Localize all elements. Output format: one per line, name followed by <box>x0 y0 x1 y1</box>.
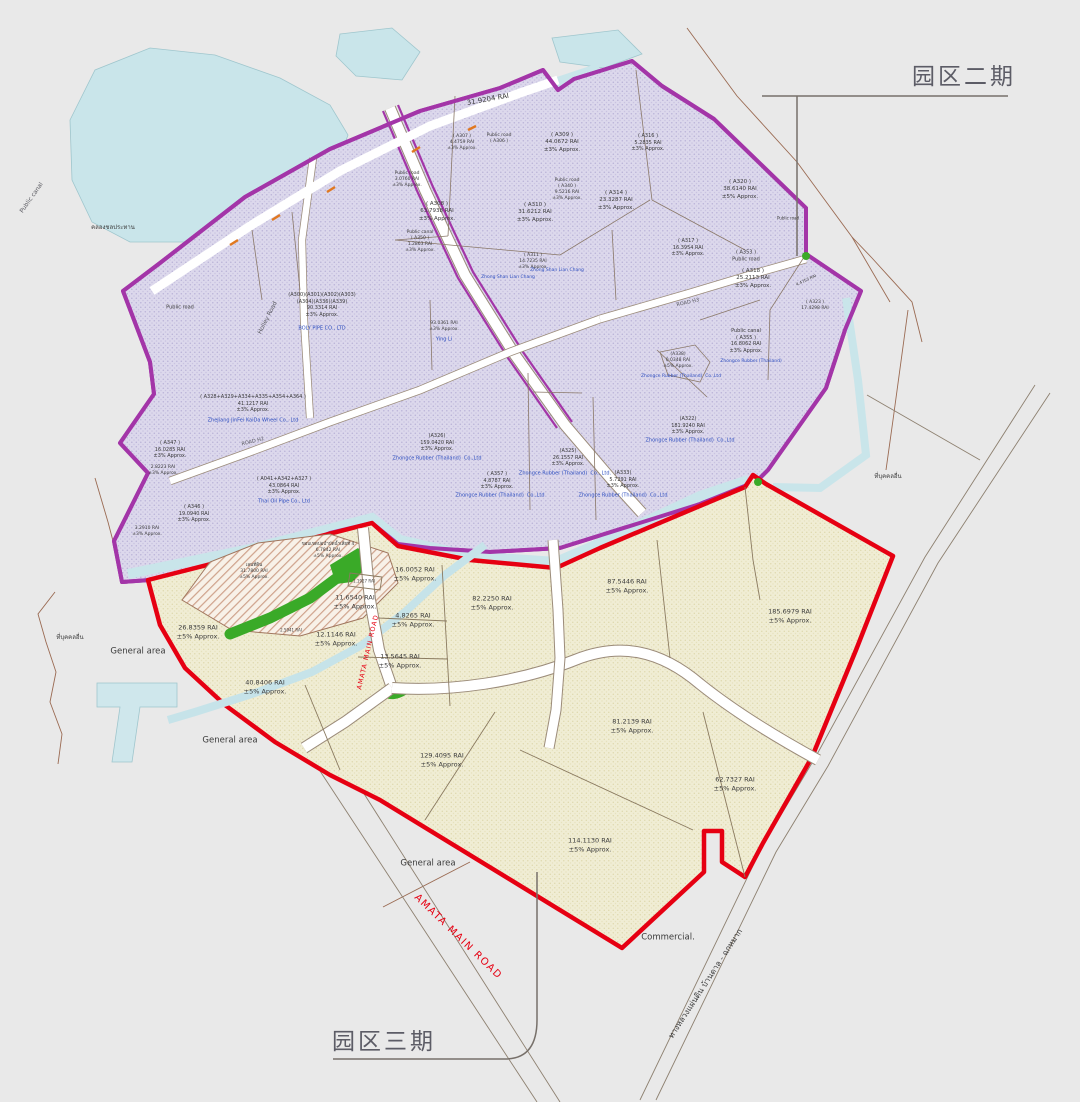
site-plan-map <box>0 0 1080 1102</box>
site-plan-page: 31.9204 RAI( A307 ) 4.4759 RAI ±3% Appro… <box>0 0 1080 1102</box>
phase3-title: 园区三期 <box>332 1022 436 1056</box>
phase2-title: 园区二期 <box>912 57 1016 91</box>
